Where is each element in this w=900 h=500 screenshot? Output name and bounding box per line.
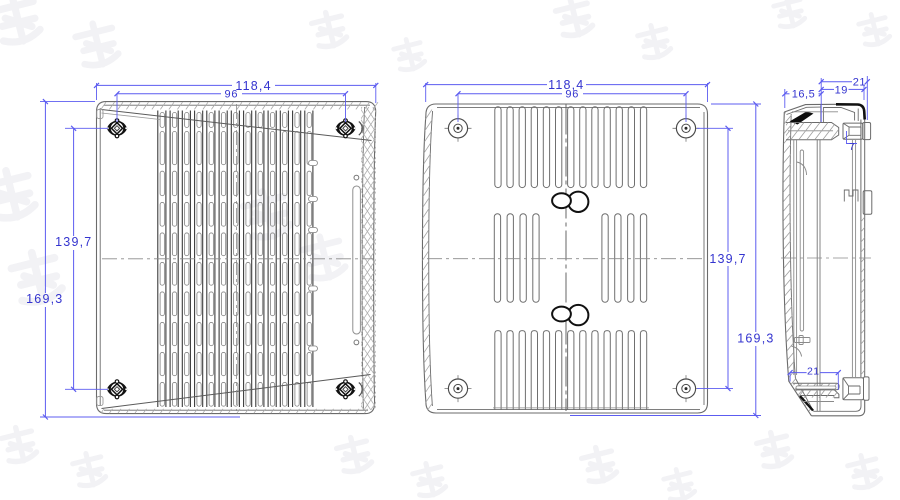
svg-text:169,3: 169,3 bbox=[26, 292, 63, 306]
svg-text:118,4: 118,4 bbox=[235, 79, 271, 93]
svg-text:21: 21 bbox=[853, 77, 866, 89]
svg-text:7: 7 bbox=[849, 142, 855, 153]
svg-text:139,7: 139,7 bbox=[709, 252, 746, 266]
svg-text:19: 19 bbox=[835, 84, 848, 96]
svg-text:169,3: 169,3 bbox=[737, 332, 774, 346]
svg-text:21: 21 bbox=[807, 366, 819, 378]
svg-text:139,7: 139,7 bbox=[55, 235, 92, 249]
svg-text:16,5: 16,5 bbox=[792, 89, 815, 101]
svg-text:96: 96 bbox=[224, 89, 238, 101]
svg-text:96: 96 bbox=[565, 89, 579, 101]
